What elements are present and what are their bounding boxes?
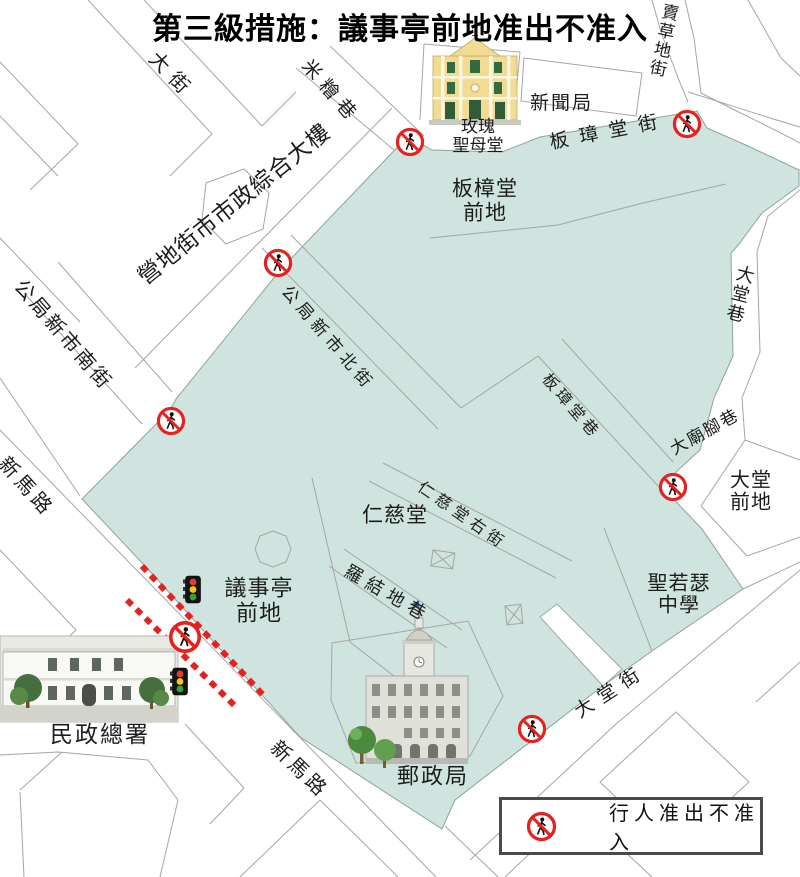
leal-senado-illustration [0, 636, 178, 722]
legend-icon-slot [526, 811, 557, 842]
legend-no-pedestrian-icon [526, 811, 557, 842]
macau-restriction-map: 第三級措施：議事亭前地准出不准入 [0, 0, 800, 877]
legend-label: 行人准出不准入 [609, 797, 760, 855]
map-canvas [0, 0, 800, 877]
traffic-light-icon [170, 668, 188, 695]
legend: 行人准出不准入 [499, 797, 763, 855]
traffic-light-icon [183, 576, 201, 603]
page-title: 第三級措施：議事亭前地准出不准入 [0, 4, 800, 48]
